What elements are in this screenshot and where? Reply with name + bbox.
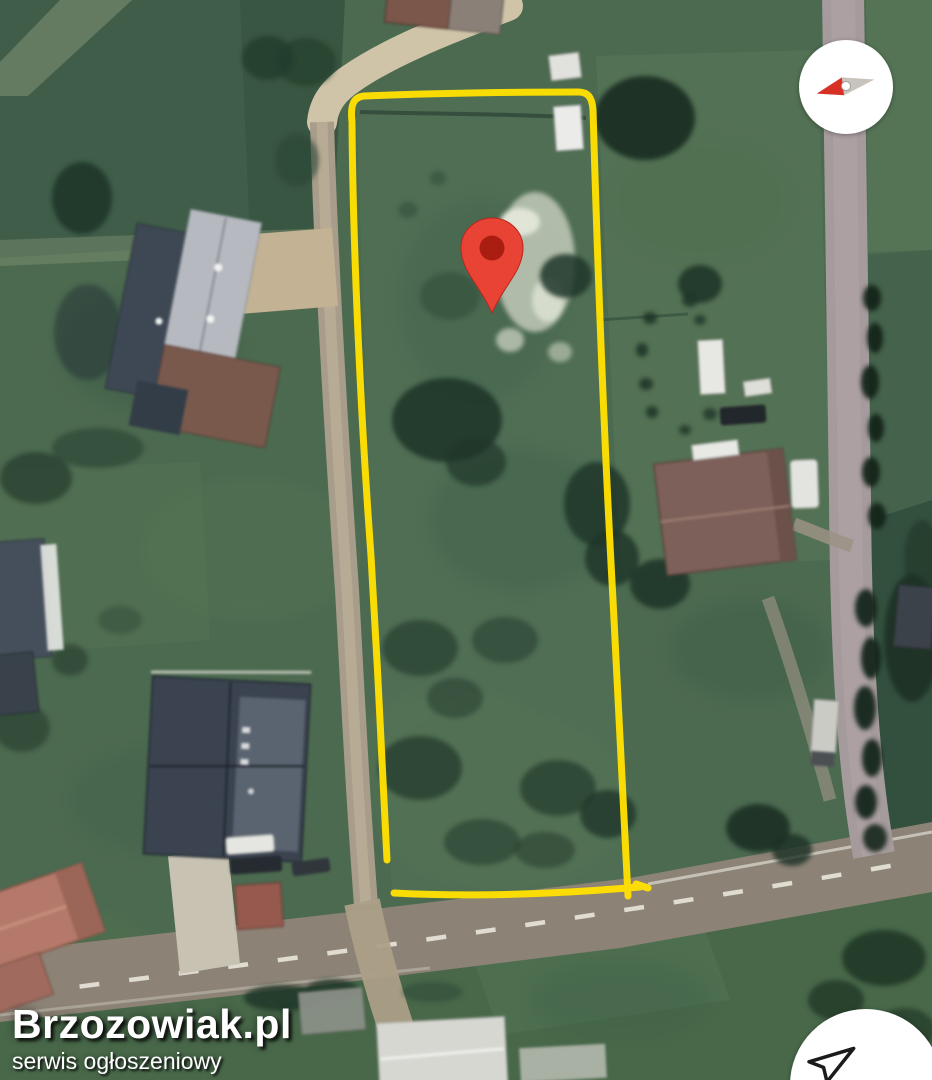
compass-icon bbox=[799, 40, 893, 134]
car bbox=[226, 834, 275, 854]
satellite-imagery bbox=[0, 0, 932, 1080]
compass-button[interactable] bbox=[799, 40, 893, 134]
watermark-title: Brzozowiak.pl bbox=[12, 1002, 292, 1047]
shed-roof bbox=[235, 882, 284, 929]
building-roof bbox=[0, 652, 39, 717]
building-roof bbox=[519, 1044, 607, 1080]
watermark-subtitle: serwis ogłoszeniowy bbox=[12, 1048, 292, 1075]
house-roof bbox=[0, 538, 64, 661]
trailer bbox=[549, 52, 582, 80]
navigate-button[interactable] bbox=[790, 1009, 932, 1080]
car bbox=[790, 460, 819, 509]
trailer bbox=[698, 339, 726, 394]
building-roof bbox=[893, 584, 932, 649]
pin-inner-dot bbox=[480, 236, 505, 261]
navigation-arrow-icon bbox=[790, 1009, 932, 1080]
building-roof bbox=[377, 1017, 508, 1080]
car bbox=[743, 378, 772, 397]
car bbox=[719, 404, 766, 425]
house-roof bbox=[142, 664, 312, 862]
trailer bbox=[553, 105, 583, 151]
driveway bbox=[168, 850, 240, 974]
watermark: Brzozowiak.pl serwis ogłoszeniowy bbox=[12, 1002, 292, 1075]
satellite-map-view[interactable]: Brzozowiak.pl serwis ogłoszeniowy bbox=[0, 0, 932, 1080]
building-roof bbox=[298, 987, 365, 1034]
